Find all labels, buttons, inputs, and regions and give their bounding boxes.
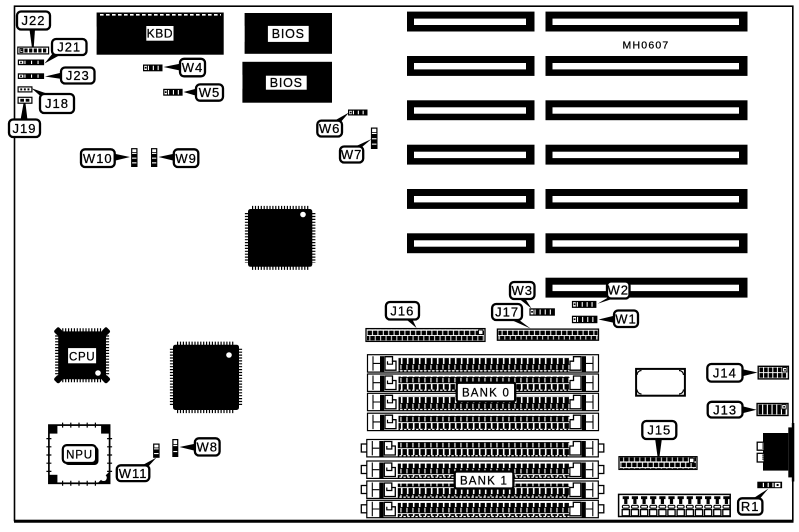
svg-text:CPU: CPU [69,351,95,363]
svg-text:W10: W10 [83,151,113,166]
svg-text:W5: W5 [199,85,221,100]
svg-text:J13: J13 [713,402,737,417]
svg-text:W4: W4 [182,60,204,75]
svg-text:MH0607: MH0607 [623,40,670,52]
svg-text:W2: W2 [607,283,629,298]
svg-text:BANK 0: BANK 0 [462,387,510,399]
svg-text:J16: J16 [390,303,414,318]
svg-text:J15: J15 [647,423,671,438]
svg-text:BIOS: BIOS [272,27,305,41]
svg-text:R1: R1 [741,499,760,514]
svg-text:J22: J22 [22,13,46,28]
svg-text:J14: J14 [713,366,737,381]
svg-text:W3: W3 [511,283,533,298]
svg-text:BANK 1: BANK 1 [460,475,508,487]
svg-text:BIOS: BIOS [270,76,303,90]
svg-text:J19: J19 [13,121,37,136]
svg-text:W8: W8 [196,440,218,455]
svg-text:J17: J17 [495,305,519,320]
svg-text:W1: W1 [615,311,637,326]
svg-text:J21: J21 [57,40,81,55]
svg-text:KBD: KBD [147,27,173,41]
svg-text:W9: W9 [175,151,197,166]
svg-text:W7: W7 [341,147,363,162]
svg-text:NPU: NPU [66,449,93,461]
svg-text:J23: J23 [66,68,90,83]
svg-text:J18: J18 [45,96,69,111]
svg-text:W6: W6 [319,121,341,136]
svg-text:W11: W11 [119,466,148,481]
